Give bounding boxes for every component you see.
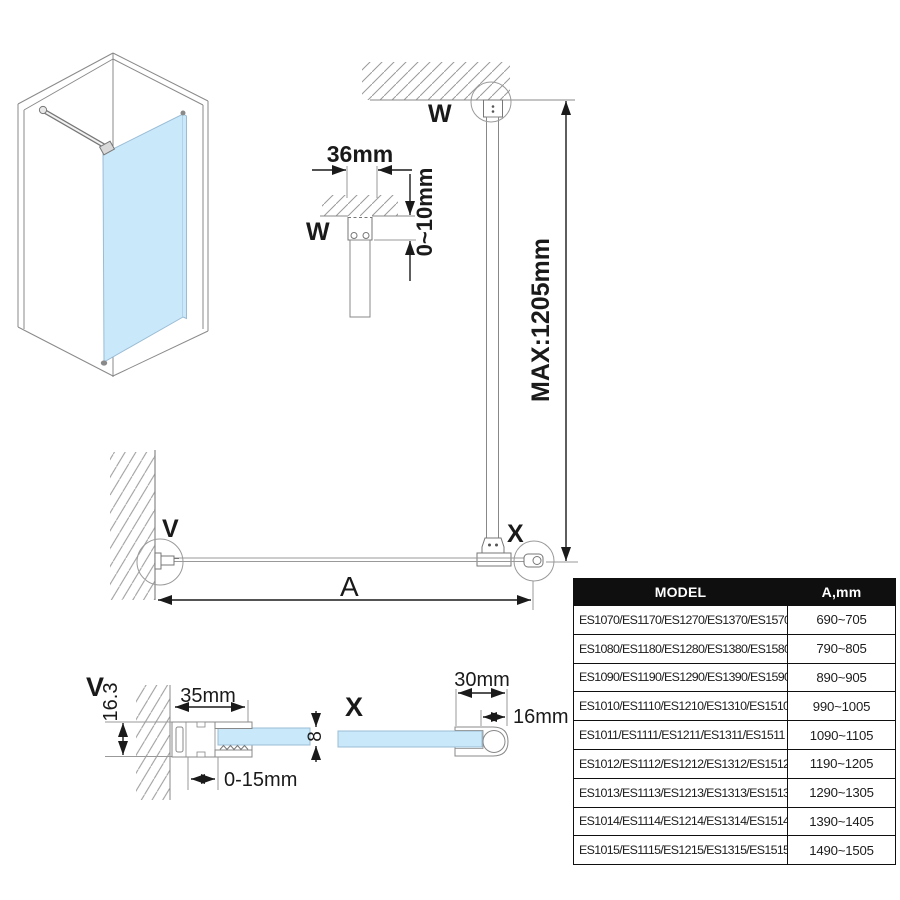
ceiling-gap-label: 0~10mm <box>412 168 437 257</box>
glass-thickness-label: 8 <box>305 731 326 742</box>
wall-hatch-detail <box>136 685 170 800</box>
w-detail-label: W <box>306 218 330 246</box>
support-bar-plan <box>477 100 511 566</box>
model-cell: ES1090/ES1190/ES1290/ES1390/ES1590 <box>574 663 788 692</box>
v-plan-label: V <box>162 515 179 543</box>
detail-x-drawing: X 30mm 16mm <box>338 669 569 756</box>
table-row: ES1090/ES1190/ES1290/ES1390/ES1590 890~9… <box>574 663 896 692</box>
table-row: ES1070/ES1170/ES1270/ES1370/ES1570 690~7… <box>574 606 896 635</box>
bar-detail <box>350 240 370 317</box>
profile-width-label: 35mm <box>180 685 236 707</box>
isometric-view <box>18 53 208 377</box>
table-header-amm: A,mm <box>788 579 896 606</box>
model-cell: ES1015/ES1115/ES1215/ES1315/ES1515 <box>574 836 788 865</box>
model-table: MODEL A,mm ES1070/ES1170/ES1270/ES1370/E… <box>573 578 896 865</box>
amm-cell: 990~1005 <box>788 692 896 721</box>
wall-profile-section <box>172 722 310 757</box>
table-row: ES1014/ES1114/ES1214/ES1314/ES1514 1390~… <box>574 807 896 836</box>
table-header-row: MODEL A,mm <box>574 579 896 606</box>
model-cell: ES1013/ES1113/ES1213/ES1313/ES1513 <box>574 778 788 807</box>
amm-cell: 890~905 <box>788 663 896 692</box>
round-bar-section <box>483 731 505 753</box>
model-cell: ES1014/ES1114/ES1214/ES1314/ES1514 <box>574 807 788 836</box>
table-row: ES1013/ES1113/ES1213/ES1313/ES1513 1290~… <box>574 778 896 807</box>
model-cell: ES1011/ES1111/ES1211/ES1311/ES1511 <box>574 721 788 750</box>
dim-0-10mm: 0~10mm <box>374 168 437 281</box>
amm-cell: 790~805 <box>788 634 896 663</box>
dim-36mm: 36mm <box>312 141 412 198</box>
model-cell: ES1012/ES1112/ES1212/ES1312/ES1512 <box>574 749 788 778</box>
amm-cell: 1290~1305 <box>788 778 896 807</box>
amm-cell: 1390~1405 <box>788 807 896 836</box>
model-cell: ES1010/ES1110/ES1210/ES1310/ES1510 <box>574 692 788 721</box>
end-profile-section <box>338 727 508 756</box>
amm-cell: 690~705 <box>788 606 896 635</box>
ceiling-hatch-detail <box>322 195 398 216</box>
profile-height-label: 16.3 <box>100 683 122 722</box>
model-cell: ES1080/ES1180/ES1280/ES1380/ES1580 <box>574 634 788 663</box>
max-length-label: MAX:1205mm <box>527 238 555 402</box>
amm-cell: 1190~1205 <box>788 749 896 778</box>
dim-max-length: MAX:1205mm <box>527 101 578 562</box>
table-header-model: MODEL <box>574 579 788 606</box>
dim-a: A <box>158 571 533 610</box>
wall-adjustment-label: 0-15mm <box>224 769 297 791</box>
table-row: ES1012/ES1112/ES1212/ES1312/ES1512 1190~… <box>574 749 896 778</box>
wall-hatch-plan <box>110 452 155 600</box>
table-row: ES1010/ES1110/ES1210/ES1310/ES1510 990~1… <box>574 692 896 721</box>
floor-fitting-iso <box>101 360 107 365</box>
table-row: ES1011/ES1111/ES1211/ES1311/ES1511 1090~… <box>574 721 896 750</box>
glass-x-detail <box>338 731 482 747</box>
dim-8mm: 8 <box>305 711 326 762</box>
end-profile-round-label: 16mm <box>513 706 569 728</box>
detail-w-drawing: 36mm 0~10mm W <box>306 141 437 317</box>
ceiling-hatch <box>362 62 510 100</box>
table-row: ES1015/ES1115/ES1215/ES1315/ES1515 1490~… <box>574 836 896 865</box>
dim-0-15mm: 0-15mm <box>188 757 297 791</box>
detail-v-drawing: V 16.3 35mm <box>86 672 326 800</box>
amm-cell: 1090~1105 <box>788 721 896 750</box>
technical-diagram-page: MAX:1205mm A W V X 36mm <box>0 0 900 900</box>
w-plan-label: W <box>428 100 452 128</box>
x-detail-label: X <box>345 692 363 722</box>
bracket-detail <box>348 217 372 317</box>
glass-v-detail <box>218 728 310 745</box>
x-plan-label: X <box>507 520 524 548</box>
bracket-width-label: 36mm <box>327 141 393 167</box>
table-row: ES1080/ES1180/ES1280/ES1380/ES1580 790~8… <box>574 634 896 663</box>
support-bar-iso <box>39 106 114 154</box>
top-fitting-iso <box>181 111 186 116</box>
dim-35mm: 35mm <box>175 685 248 722</box>
amm-cell: 1490~1505 <box>788 836 896 865</box>
a-label: A <box>340 571 359 602</box>
model-cell: ES1070/ES1170/ES1270/ES1370/ES1570 <box>574 606 788 635</box>
end-profile-width-label: 30mm <box>454 669 510 691</box>
dim-16mm: 16mm <box>481 706 569 728</box>
